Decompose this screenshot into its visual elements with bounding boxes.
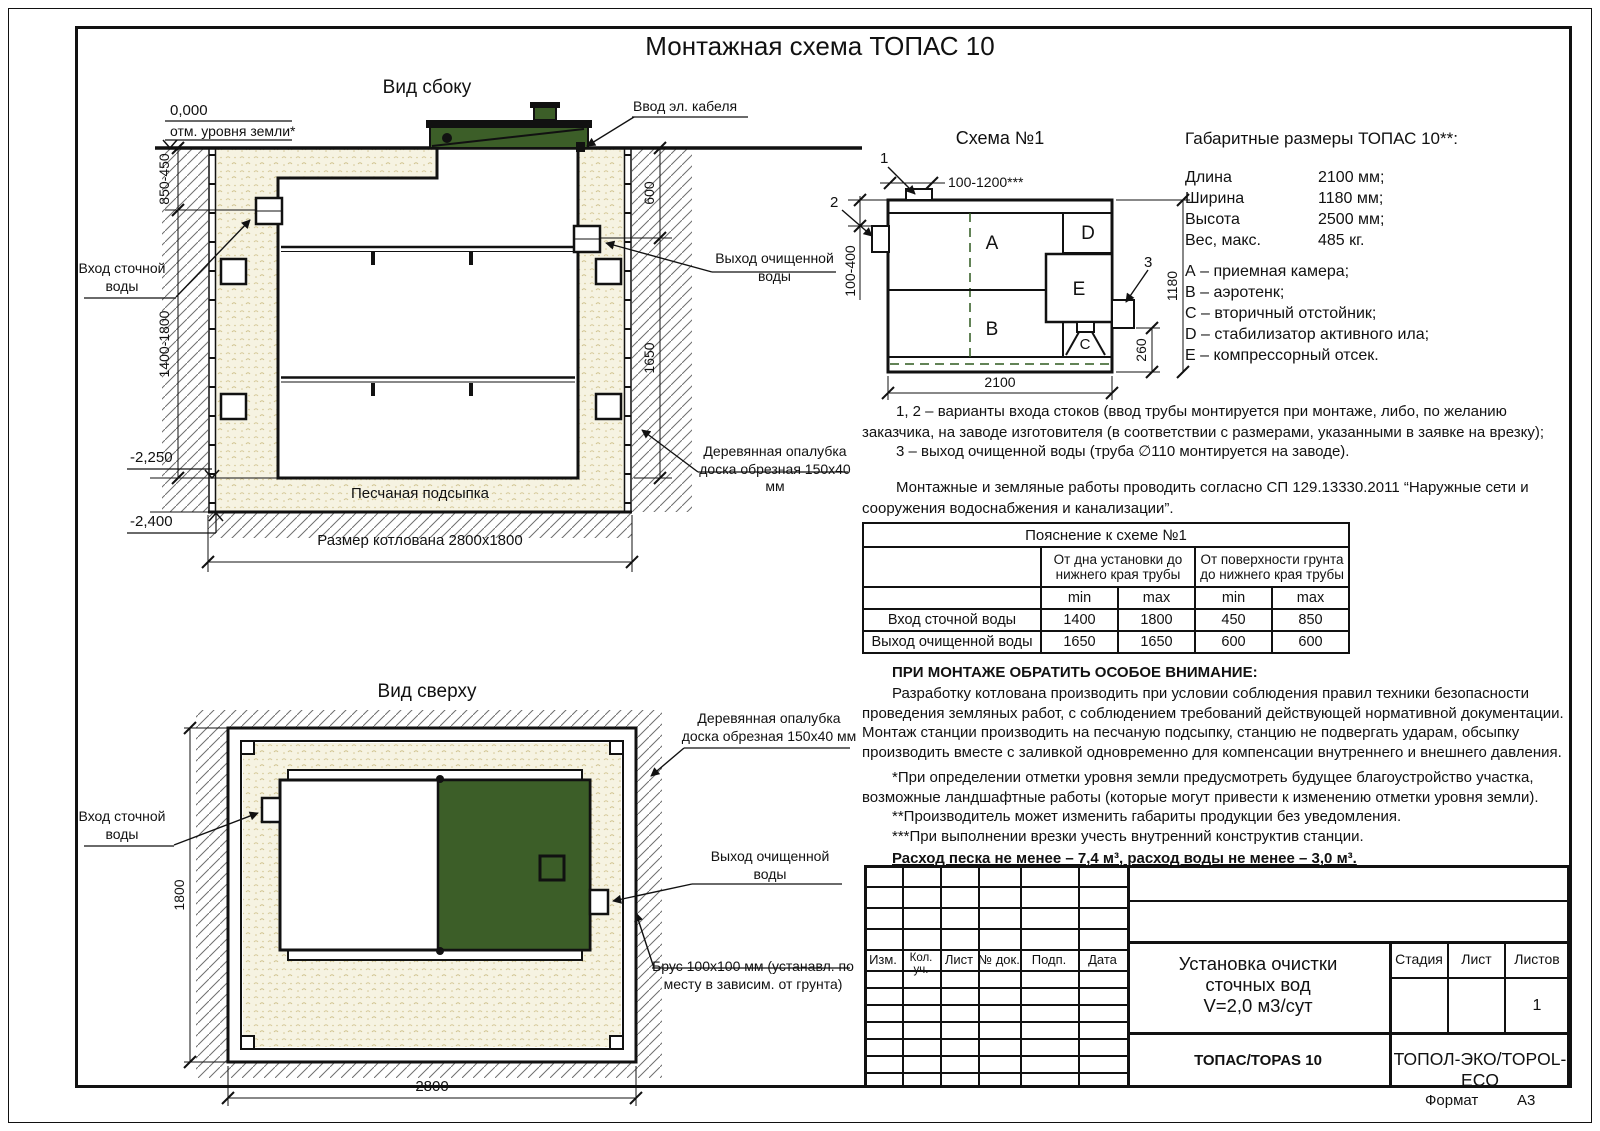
attention-body: Разработку котлована производить при усл… [862,684,1568,762]
attention-footnote-1: *При определении отметки уровня земли пр… [862,768,1568,807]
table-title: Пояснение к схеме №1 [863,523,1349,547]
table-group2-header: От поверхности грунта до нижнего края тр… [1195,547,1349,587]
dim-1800: 1800 [171,835,191,955]
table-row: Вход сточной воды 1400 1800 450 850 [863,609,1349,631]
chamber-d-label: D [1068,222,1108,246]
table-min2: min [1195,587,1272,609]
dim-100-1200: 100-1200*** [948,174,1024,192]
table-cell: 600 [1272,631,1349,653]
inlet-label-side: Вход сточной воды [62,260,182,295]
note-works: Монтажные и земляные работы проводить со… [862,478,1567,519]
stamp-col-list: Лист [940,952,978,967]
stamp-company-name: ТОПОЛ-ЭКО/TOPOL-ECO [1392,1049,1568,1091]
spec-label-length: Длина [1185,168,1232,188]
table-max2: max [1272,587,1349,609]
table-cell: 450 [1195,609,1272,631]
pit-size-label: Размер котлована 2800х1800 [300,532,540,551]
scheme-marker-3: 3 [1144,254,1152,273]
table-cell: 600 [1195,631,1272,653]
legend-b: В – аэротенк; [1185,283,1284,303]
inlet-label-top: Вход сточной воды [62,808,182,843]
level-minus-2250: -2,250 [130,449,173,468]
stamp-col-kol: Кол. уч. [902,952,940,976]
legend-c: С – вторичный отстойник; [1185,304,1376,324]
level-minus-2400: -2,400 [130,513,173,532]
side-view-title: Вид сбоку [327,76,527,100]
attention-footnote-3: ***При выполнении врезки учесть внутренн… [862,828,1568,847]
spec-label-weight: Вес, макс. [1185,231,1261,251]
title-block: Изм. Кол. уч. Лист № док. Подп. Дата Уст… [864,865,1570,1088]
dim-1650: 1650 [641,298,661,418]
chamber-c-label: С [1068,336,1102,355]
spec-label-width: Ширина [1185,189,1244,209]
chamber-b-label: В [972,318,1012,342]
table-cell: 1650 [1118,631,1195,653]
scheme-marker-1: 1 [880,150,888,169]
dim-600: 600 [641,133,661,253]
table-corner-cell [863,547,1041,587]
attention-heading: ПРИ МОНТАЖЕ ОБРАТИТЬ ОСОБОЕ ВНИМАНИЕ: [862,664,1567,683]
dim-100-400: 100-400 [842,211,862,331]
formwork-label-side: Деревянная опалубка доска обрезная 150х4… [690,443,860,496]
attention-footnote-2: **Производитель может изменить габариты … [862,808,1568,827]
spec-value-weight: 485 кг. [1318,231,1364,251]
note-inlet-variants: 1, 2 – варианты входа стоков (ввод трубы… [862,402,1567,443]
format-label: Формат [1425,1092,1478,1111]
dim-2800: 2800 [382,1078,482,1097]
formwork-label-top: Деревянная опалубка доска обрезная 150х4… [680,710,858,745]
page-title: Монтажная схема ТОПАС 10 [570,30,1070,63]
note-outlet: 3 – выход очищенной воды (труба ∅110 мон… [862,443,1567,462]
dim-260: 260 [1133,290,1153,410]
table-row: Выход очищенной воды 1650 1650 600 600 [863,631,1349,653]
scheme-marker-2: 2 [830,194,838,213]
spec-value-length: 2100 мм; [1318,168,1384,188]
legend-d: D – стабилизатор активного ила; [1185,325,1429,345]
table-cell: 1800 [1118,609,1195,631]
cable-entry-label: Ввод эл. кабеля [633,98,737,116]
drawing-sheet: Монтажная схема ТОПАС 10 Вид сбоку 0,000… [0,0,1600,1131]
ground-level-note: отм. уровня земли* [170,123,295,141]
stamp-doc-name: Установка очистки сточных вод V=2,0 м3/с… [1132,953,1384,1016]
stamp-stage-label: Стадия [1391,951,1447,967]
spec-value-height: 2500 мм; [1318,210,1384,230]
legend-a: А – приемная камера; [1185,262,1349,282]
stamp-col-izm: Изм. [864,952,902,967]
stamp-product-name: ТОПАС/TOPAS 10 [1132,1052,1384,1069]
zero-level-label: 0,000 [170,102,208,121]
table-cell: 850 [1272,609,1349,631]
stamp-sheets-value: 1 [1506,997,1568,1015]
stamp-col-doc: № док. [978,952,1020,967]
chamber-a-label: А [972,232,1012,256]
spec-value-width: 1180 мм; [1318,189,1383,209]
dim-1180: 1180 [1164,226,1184,346]
table-min1: min [1041,587,1118,609]
scheme-title: Схема №1 [920,127,1080,150]
stamp-sheet-label: Лист [1449,951,1504,967]
stamp-col-data: Дата [1078,952,1127,967]
table-cell: 1650 [1041,631,1118,653]
specs-title: Габаритные размеры ТОПАС 10**: [1185,128,1458,149]
table-row-name: Вход сточной воды [863,609,1041,631]
table-empty-cell [863,587,1041,609]
dim-850-450: 850-450 [156,119,176,239]
explanation-table: Пояснение к схеме №1 От дна установки до… [862,522,1350,654]
stamp-sheets-label: Листов [1506,951,1568,967]
outlet-label-side: Выход очищенной воды [702,250,847,285]
legend-e: Е – компрессорный отсек. [1185,346,1379,366]
beam-label-top: Брус 100х100 мм (устанавл. по месту в за… [648,958,858,993]
chamber-e-label: Е [1059,278,1099,302]
table-cell: 1400 [1041,609,1118,631]
dim-1400-1800: 1400-1800 [156,284,176,404]
format-value: А3 [1517,1092,1535,1111]
outlet-label-top: Выход очищенной воды [695,848,845,883]
sand-bed-label: Песчаная подсыпка [330,485,510,504]
top-view-drawing [84,710,850,1106]
table-max1: max [1118,587,1195,609]
top-view-title: Вид сверху [327,680,527,704]
dim-2100: 2100 [950,374,1050,392]
stamp-col-podp: Подп. [1020,952,1078,967]
table-group1-header: От дна установки до нижнего края трубы [1041,547,1195,587]
spec-label-height: Высота [1185,210,1240,230]
table-row-name: Выход очищенной воды [863,631,1041,653]
